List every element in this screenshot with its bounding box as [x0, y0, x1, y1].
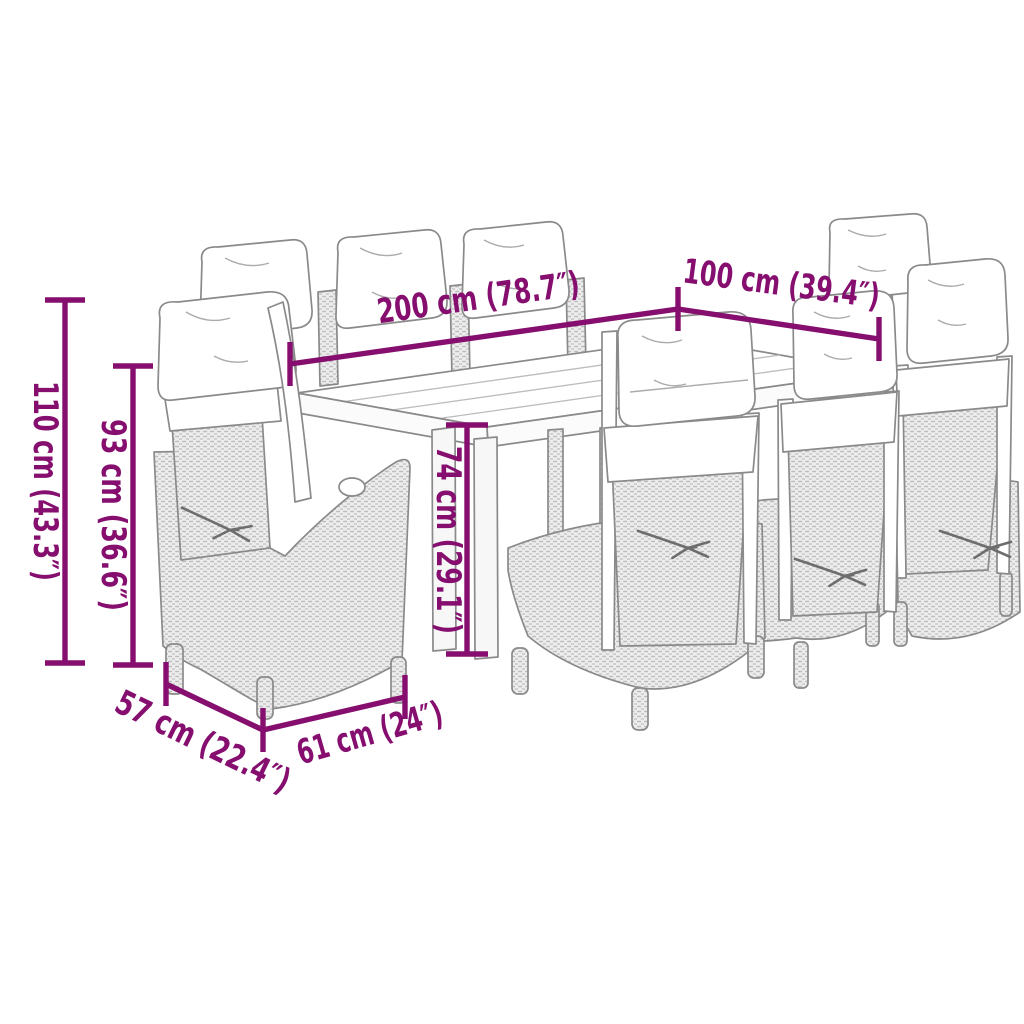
chair-leg: [794, 642, 808, 688]
dimension-label-table-height: 74 cm (29.1″): [428, 446, 468, 634]
dimension-label-overall-height: 110 cm (43.3″): [25, 381, 65, 581]
dimension-overall-height: 110 cm (43.3″): [25, 300, 85, 663]
chair-back-band: [604, 416, 758, 482]
table-leg-left-front: [474, 437, 498, 659]
chair-leg: [1000, 572, 1012, 616]
chair-back-panel: [172, 415, 270, 560]
chair-leg: [632, 688, 648, 730]
chair-back-panel: [612, 456, 748, 646]
chair-cushion: [618, 312, 755, 426]
product-dimension-diagram: 110 cm (43.3″) 93 cm (36.6″) 200 cm (78.…: [0, 0, 1024, 1024]
chair-cushion: [907, 259, 1008, 363]
line-art: [154, 214, 1020, 730]
chair-leg: [512, 648, 528, 694]
front-left-chair: [154, 292, 410, 719]
chair-back-band: [896, 359, 1009, 416]
chair-back-post: [318, 290, 338, 386]
diagram-svg: 110 cm (43.3″) 93 cm (36.6″) 200 cm (78.…: [0, 0, 1024, 1024]
chair-back-panel: [788, 426, 890, 616]
chair-right-3: [878, 259, 1020, 646]
dimension-label-chair-back-height: 93 cm (36.6″): [93, 419, 133, 611]
armrest-handle: [339, 478, 365, 496]
dimension-chair-back-height: 93 cm (36.6″): [93, 366, 153, 665]
